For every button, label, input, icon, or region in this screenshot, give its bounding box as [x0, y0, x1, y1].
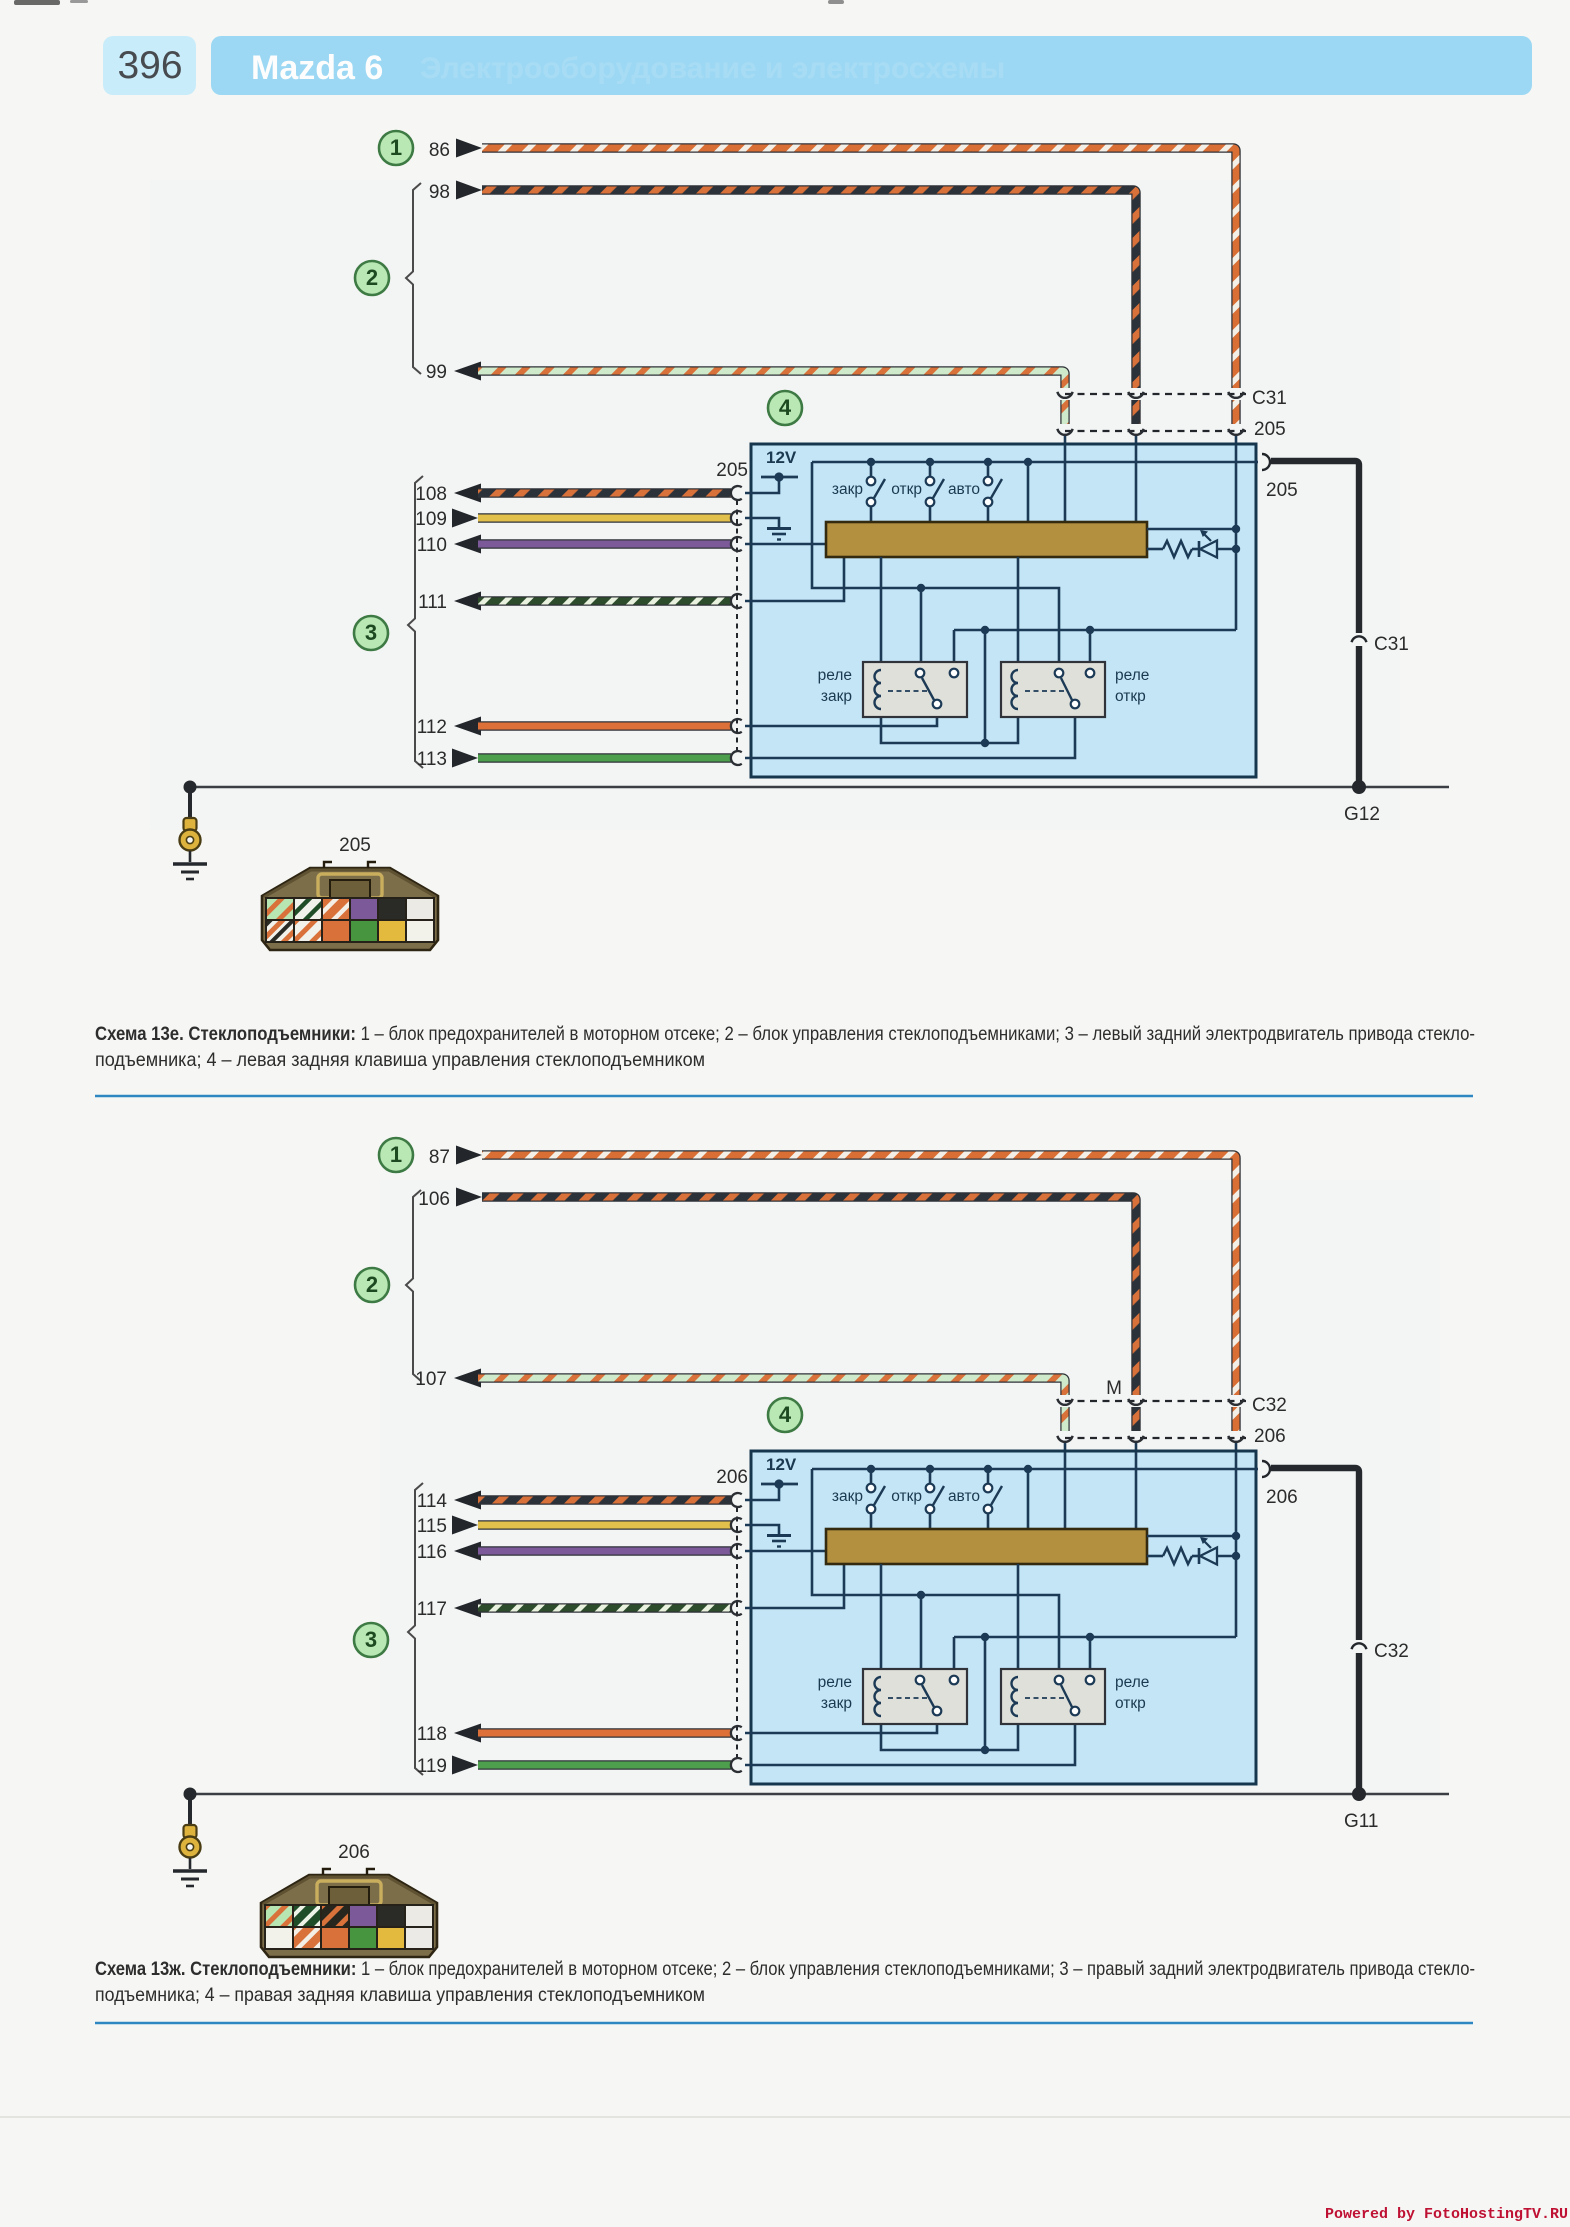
svg-text:откр: откр: [891, 1488, 922, 1505]
svg-text:реле: реле: [818, 1674, 852, 1691]
svg-text:3: 3: [365, 1627, 377, 1652]
svg-text:C32: C32: [1252, 1395, 1287, 1416]
svg-text:Схема 13е. Стеклоподъемники: 1: Схема 13е. Стеклоподъемники: 1 – блок пр…: [95, 1024, 1475, 1045]
svg-text:108: 108: [415, 484, 447, 505]
svg-text:106: 106: [418, 1189, 450, 1210]
svg-text:реле: реле: [1115, 667, 1149, 684]
svg-text:206: 206: [1254, 1426, 1286, 1447]
svg-text:118: 118: [417, 1724, 447, 1745]
svg-text:206: 206: [1266, 1487, 1298, 1508]
svg-text:107: 107: [415, 1369, 447, 1390]
svg-text:1: 1: [390, 135, 402, 160]
svg-text:205: 205: [1266, 480, 1298, 501]
svg-text:Powered by FotoHostingTV.RU: Powered by FotoHostingTV.RU: [1325, 2206, 1568, 2222]
svg-text:396: 396: [117, 44, 182, 87]
svg-text:112: 112: [417, 717, 447, 738]
svg-text:авто: авто: [948, 1488, 980, 1505]
svg-text:подъемника; 4 – правая задняя: подъемника; 4 – правая задняя клавиша уп…: [95, 1985, 705, 2006]
svg-text:закр: закр: [821, 688, 852, 705]
svg-text:87: 87: [429, 1147, 450, 1168]
svg-text:авто: авто: [948, 481, 980, 498]
svg-text:реле: реле: [818, 667, 852, 684]
svg-text:86: 86: [429, 140, 450, 161]
svg-text:205: 205: [716, 460, 748, 481]
svg-text:205: 205: [1254, 419, 1286, 440]
svg-text:Электрооборудование и электрос: Электрооборудование и электросхемы: [420, 52, 1005, 85]
svg-text:114: 114: [417, 1491, 448, 1512]
svg-text:C31: C31: [1374, 634, 1409, 655]
svg-text:C32: C32: [1374, 1641, 1409, 1662]
svg-text:113: 113: [417, 749, 447, 770]
svg-text:G12: G12: [1344, 804, 1380, 825]
svg-text:117: 117: [417, 1599, 447, 1620]
svg-text:M: M: [1106, 1378, 1122, 1399]
svg-text:откр: откр: [1115, 688, 1146, 705]
svg-text:111: 111: [418, 592, 447, 613]
svg-text:3: 3: [365, 620, 377, 645]
svg-text:2: 2: [366, 1272, 378, 1297]
svg-text:205: 205: [339, 835, 371, 856]
svg-text:99: 99: [426, 362, 447, 383]
svg-text:реле: реле: [1115, 1674, 1149, 1691]
svg-text:закр: закр: [832, 1488, 863, 1505]
svg-text:откр: откр: [891, 481, 922, 498]
svg-text:откр: откр: [1115, 1695, 1146, 1712]
svg-text:2: 2: [366, 265, 378, 290]
svg-text:116: 116: [417, 1542, 447, 1563]
svg-text:закр: закр: [821, 1695, 852, 1712]
svg-text:C31: C31: [1252, 388, 1287, 409]
svg-text:1: 1: [390, 1142, 402, 1167]
svg-text:115: 115: [417, 1516, 447, 1537]
svg-text:G11: G11: [1344, 1811, 1379, 1832]
svg-text:98: 98: [429, 182, 450, 203]
svg-text:110: 110: [417, 535, 447, 556]
svg-text:119: 119: [417, 1756, 447, 1777]
svg-text:4: 4: [779, 1402, 792, 1427]
svg-text:закр: закр: [832, 481, 863, 498]
svg-text:подъемника; 4 – левая задняя к: подъемника; 4 – левая задняя клавиша упр…: [95, 1050, 705, 1071]
svg-text:206: 206: [338, 1842, 370, 1863]
svg-text:109: 109: [415, 509, 447, 530]
svg-text:Схема 13ж. Стеклоподъемники: 1: Схема 13ж. Стеклоподъемники: 1 – блок пр…: [95, 1959, 1475, 1980]
svg-text:4: 4: [779, 395, 792, 420]
svg-text:Mazda 6: Mazda 6: [251, 49, 383, 87]
svg-text:206: 206: [716, 1467, 748, 1488]
svg-text:12V: 12V: [766, 1455, 797, 1474]
svg-text:12V: 12V: [766, 448, 797, 467]
